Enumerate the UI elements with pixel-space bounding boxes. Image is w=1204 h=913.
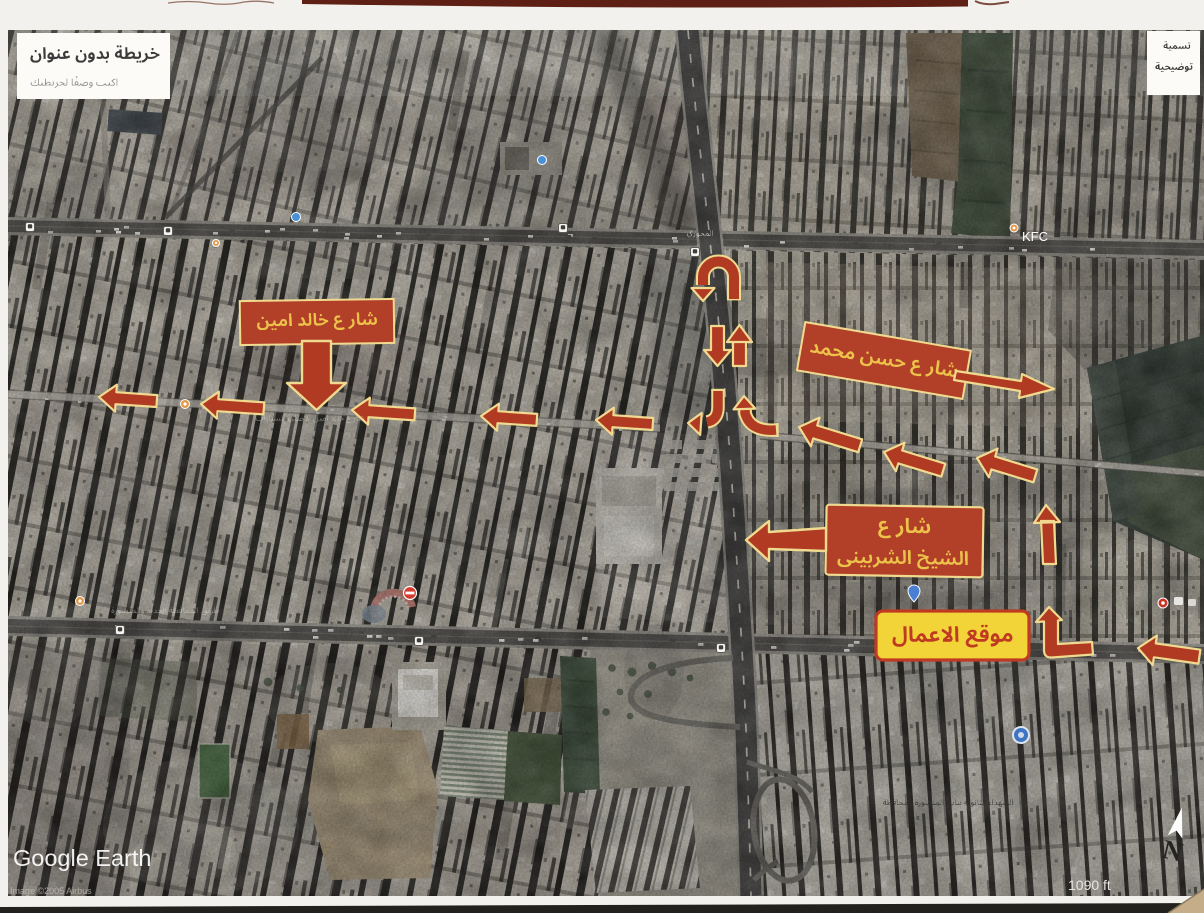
svg-text:Google Earth: Google Earth: [13, 845, 151, 871]
svg-text:1090 ft: 1090 ft: [1068, 877, 1111, 893]
svg-text:KFC: KFC: [1022, 229, 1048, 244]
svg-text:Image ©2005 Airbus: Image ©2005 Airbus: [10, 886, 92, 896]
